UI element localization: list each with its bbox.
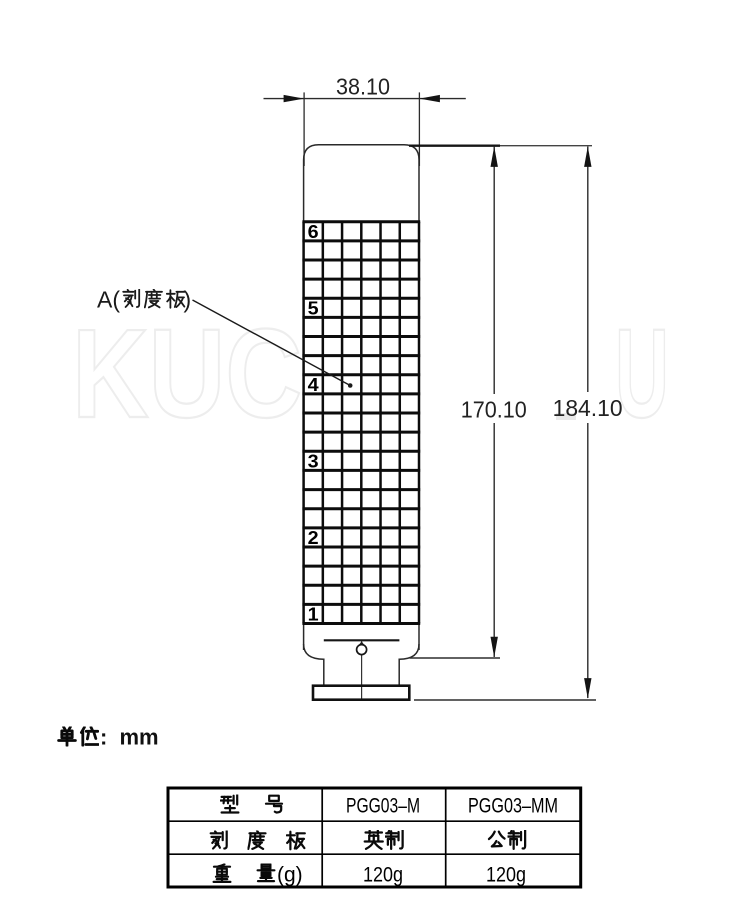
- svg-text:184.10: 184.10: [553, 395, 623, 421]
- svg-text::: :: [100, 725, 107, 750]
- svg-text:1: 1: [308, 605, 319, 625]
- svg-text:170.10: 170.10: [461, 396, 527, 422]
- svg-text:A(: A(: [97, 287, 120, 313]
- svg-text:PGG03–M: PGG03–M: [346, 795, 420, 818]
- svg-text:4: 4: [308, 375, 319, 395]
- svg-text:120g: 120g: [363, 864, 403, 887]
- svg-text:6: 6: [308, 222, 319, 242]
- svg-text:3: 3: [308, 452, 319, 472]
- svg-text:5: 5: [308, 298, 319, 318]
- svg-text:2: 2: [308, 528, 319, 548]
- svg-text:mm: mm: [120, 725, 159, 750]
- svg-text:PGG03–MM: PGG03–MM: [468, 795, 558, 818]
- svg-text:120g: 120g: [486, 864, 526, 887]
- svg-text:): ): [184, 287, 192, 313]
- svg-text:KUC: KUC: [72, 303, 302, 444]
- svg-text:(g): (g): [277, 864, 303, 887]
- svg-text:U: U: [615, 303, 669, 444]
- svg-text:38.10: 38.10: [336, 74, 390, 100]
